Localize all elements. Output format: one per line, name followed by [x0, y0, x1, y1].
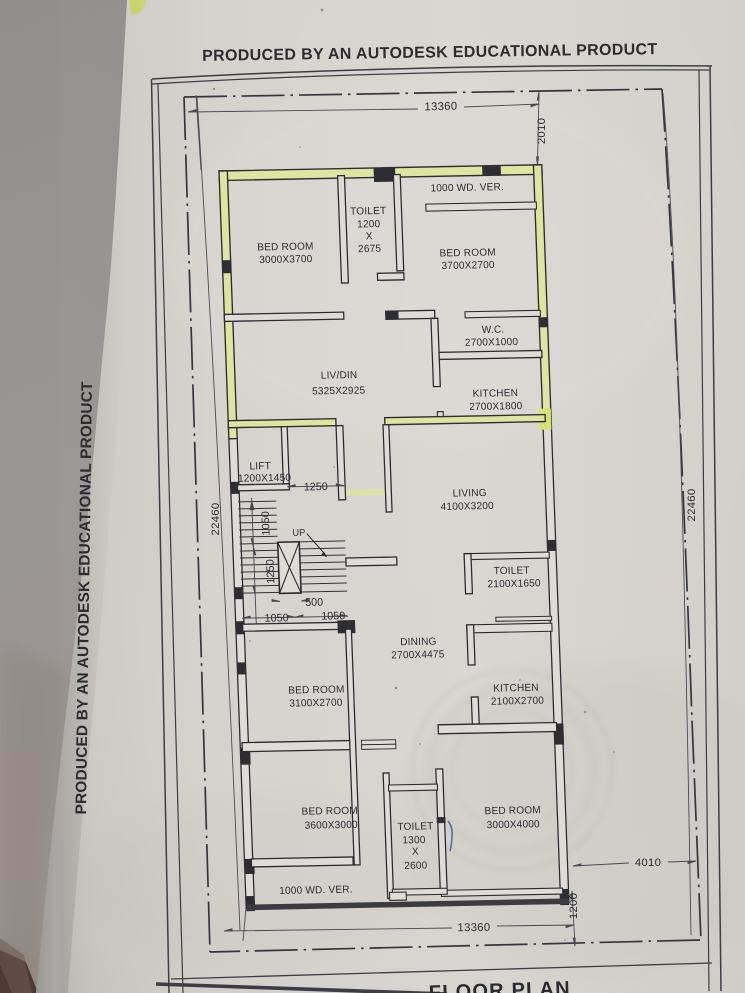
svg-text:3000X3700: 3000X3700 [259, 254, 313, 266]
svg-text:2700X4475: 2700X4475 [391, 649, 445, 661]
svg-text:UP: UP [292, 527, 305, 538]
svg-text:5325X2925: 5325X2925 [312, 385, 366, 397]
svg-text:2600: 2600 [404, 860, 428, 872]
svg-text:4100X3200: 4100X3200 [440, 501, 494, 513]
svg-text:1200X1450: 1200X1450 [238, 473, 292, 485]
svg-text:13360: 13360 [457, 922, 490, 934]
svg-text:X: X [412, 847, 419, 858]
svg-text:1050: 1050 [260, 511, 273, 536]
svg-text:4010: 4010 [635, 857, 661, 869]
svg-text:2675: 2675 [358, 244, 382, 256]
svg-text:TOILET: TOILET [397, 821, 434, 833]
svg-text:LIVING: LIVING [452, 488, 487, 500]
svg-text:BED ROOM: BED ROOM [484, 805, 541, 817]
svg-text:22460: 22460 [210, 503, 222, 536]
svg-text:22460: 22460 [686, 489, 698, 522]
svg-text:3600X3000: 3600X3000 [304, 820, 358, 832]
svg-text:KITCHEN: KITCHEN [472, 388, 518, 400]
svg-text:2100X2700: 2100X2700 [491, 696, 545, 708]
svg-text:BED ROOM: BED ROOM [288, 684, 345, 696]
svg-text:2010: 2010 [536, 118, 548, 144]
svg-text:2700X1000: 2700X1000 [465, 337, 519, 349]
svg-text:LIV/DIN: LIV/DIN [321, 370, 358, 382]
svg-text:1300: 1300 [402, 835, 426, 847]
svg-text:1000 WD. VER.: 1000 WD. VER. [279, 884, 353, 897]
svg-text:2700X1800: 2700X1800 [469, 401, 523, 413]
svg-text:3000X4000: 3000X4000 [486, 819, 540, 831]
svg-text:3700X2700: 3700X2700 [441, 260, 495, 272]
svg-text:LIFT: LIFT [249, 461, 271, 473]
svg-text:1200: 1200 [357, 219, 381, 231]
svg-text:X: X [366, 231, 373, 242]
svg-text:1250: 1250 [265, 559, 278, 584]
svg-text:TOILET: TOILET [350, 206, 387, 218]
svg-text:3100X2700: 3100X2700 [289, 697, 343, 709]
svg-text:13360: 13360 [424, 101, 457, 114]
svg-text:500: 500 [305, 596, 323, 608]
svg-text:BED ROOM: BED ROOM [301, 806, 358, 818]
svg-text:BED ROOM: BED ROOM [257, 241, 314, 253]
svg-text:BED ROOM: BED ROOM [439, 247, 496, 259]
svg-text:1200: 1200 [568, 893, 580, 919]
svg-text:1250: 1250 [304, 481, 328, 494]
svg-text:DINING: DINING [400, 636, 437, 648]
svg-text:TOILET: TOILET [493, 565, 530, 577]
svg-text:1000 WD. VER.: 1000 WD. VER. [430, 182, 504, 195]
svg-text:W.C.: W.C. [482, 324, 505, 336]
svg-text:2100X1650: 2100X1650 [487, 578, 541, 590]
svg-text:KITCHEN: KITCHEN [493, 683, 539, 695]
